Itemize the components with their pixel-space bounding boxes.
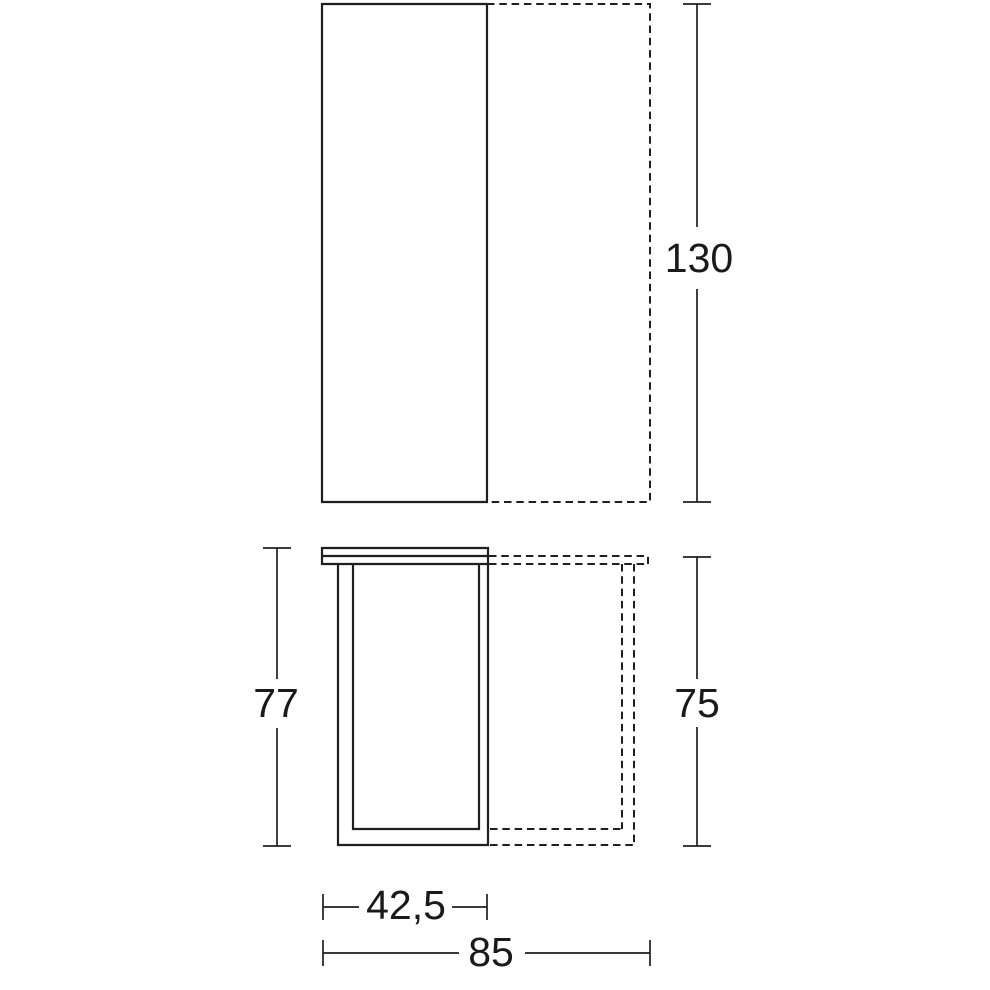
dim-130-label: 130 bbox=[665, 235, 733, 281]
dimension-plan-length: 130 bbox=[665, 4, 733, 502]
plan-extension-dashed bbox=[487, 4, 650, 502]
plan-view bbox=[322, 4, 650, 502]
dimension-side-height-extension: 75 bbox=[674, 557, 720, 846]
leg-frame-outer bbox=[338, 564, 488, 845]
diagram-page: 130 77 75 bbox=[0, 0, 990, 990]
side-view bbox=[322, 548, 648, 845]
extension-base-dashed bbox=[490, 829, 634, 845]
dim-75-label: 75 bbox=[674, 680, 720, 726]
dim-42-label: 42,5 bbox=[366, 882, 446, 928]
dimension-side-height-total: 77 bbox=[253, 548, 299, 846]
leg-frame-inner bbox=[353, 564, 479, 829]
technical-drawing-canvas: 130 77 75 bbox=[0, 0, 990, 990]
dimension-depth-closed: 42,5 bbox=[323, 882, 487, 928]
extension-leaf-dashed bbox=[489, 556, 648, 564]
dimension-depth-extended: 85 bbox=[323, 929, 650, 975]
extension-leg-dashed bbox=[622, 564, 634, 845]
plan-outline-solid bbox=[322, 4, 487, 502]
dim-77-label: 77 bbox=[253, 680, 299, 726]
dim-85-label: 85 bbox=[468, 929, 514, 975]
